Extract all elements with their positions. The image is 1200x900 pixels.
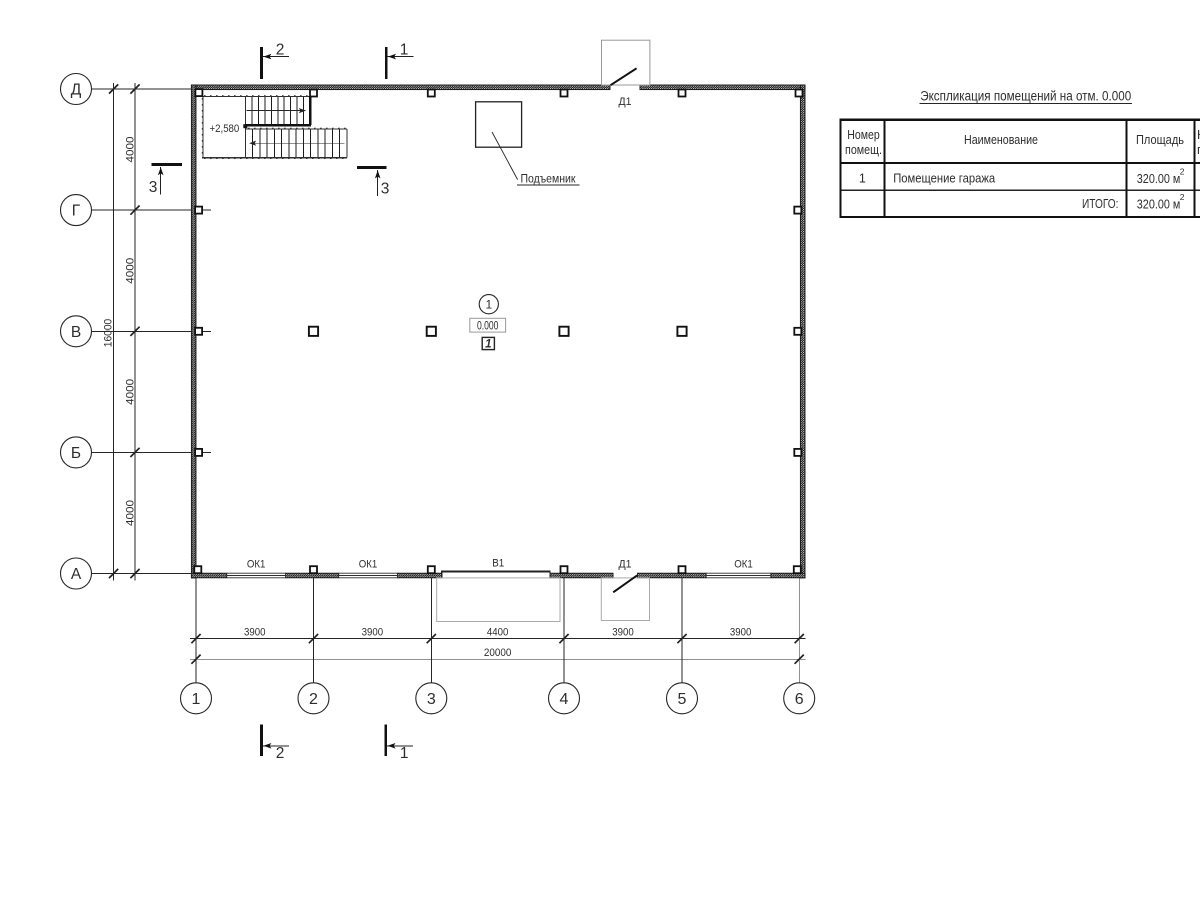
- svg-text:2: 2: [309, 691, 318, 708]
- svg-text:3: 3: [427, 691, 436, 708]
- svg-text:+2,580: +2,580: [210, 123, 240, 135]
- svg-text:2: 2: [1180, 192, 1185, 202]
- svg-text:3900: 3900: [244, 626, 266, 638]
- svg-text:Д: Д: [71, 82, 82, 99]
- svg-text:320.00 м: 320.00 м: [1137, 197, 1181, 211]
- svg-text:ОК1: ОК1: [734, 559, 753, 571]
- svg-text:А: А: [71, 566, 82, 583]
- svg-text:Площадь: Площадь: [1136, 133, 1184, 147]
- svg-text:В: В: [71, 324, 81, 341]
- svg-text:Д1: Д1: [619, 96, 632, 108]
- svg-text:4400: 4400: [487, 626, 509, 638]
- svg-text:ОК1: ОК1: [247, 559, 266, 571]
- svg-text:Б: Б: [71, 445, 81, 462]
- svg-text:3900: 3900: [362, 626, 384, 638]
- svg-text:1: 1: [485, 298, 492, 312]
- svg-text:3: 3: [149, 179, 158, 196]
- svg-text:Подъемник: Подъемник: [521, 174, 577, 186]
- svg-text:1: 1: [192, 691, 201, 708]
- svg-text:1: 1: [400, 42, 409, 59]
- svg-text:Г: Г: [72, 203, 81, 220]
- svg-text:помещ.: помещ.: [845, 143, 882, 157]
- svg-text:20000: 20000: [484, 647, 512, 659]
- svg-text:3900: 3900: [730, 626, 752, 638]
- svg-text:4000: 4000: [125, 500, 137, 526]
- svg-text:В1: В1: [492, 558, 504, 570]
- svg-text:5: 5: [678, 691, 687, 708]
- svg-text:2: 2: [1180, 166, 1185, 176]
- svg-text:1: 1: [400, 745, 409, 762]
- svg-text:6: 6: [795, 691, 804, 708]
- svg-text:Д1: Д1: [619, 558, 632, 570]
- svg-text:16000: 16000: [102, 319, 114, 348]
- svg-text:ОК1: ОК1: [359, 559, 378, 571]
- svg-text:Наименование: Наименование: [964, 133, 1038, 147]
- svg-text:1: 1: [485, 339, 491, 351]
- svg-text:Помещение гаража: Помещение гаража: [893, 172, 995, 186]
- svg-text:3: 3: [381, 180, 390, 197]
- svg-text:4: 4: [560, 691, 569, 708]
- svg-text:4000: 4000: [125, 258, 137, 284]
- svg-text:1: 1: [859, 172, 866, 186]
- svg-text:3900: 3900: [612, 626, 634, 638]
- svg-text:0.000: 0.000: [477, 321, 499, 333]
- svg-text:4000: 4000: [125, 379, 137, 405]
- svg-text:320.00 м: 320.00 м: [1137, 172, 1181, 186]
- svg-text:2: 2: [276, 42, 285, 59]
- svg-text:4000: 4000: [125, 137, 137, 163]
- svg-text:Номер: Номер: [847, 128, 880, 142]
- svg-text:Экспликация помещений на отм.: Экспликация помещений на отм. 0.000: [920, 88, 1131, 103]
- svg-text:ИТОГО:: ИТОГО:: [1082, 197, 1119, 211]
- svg-text:2: 2: [276, 745, 285, 762]
